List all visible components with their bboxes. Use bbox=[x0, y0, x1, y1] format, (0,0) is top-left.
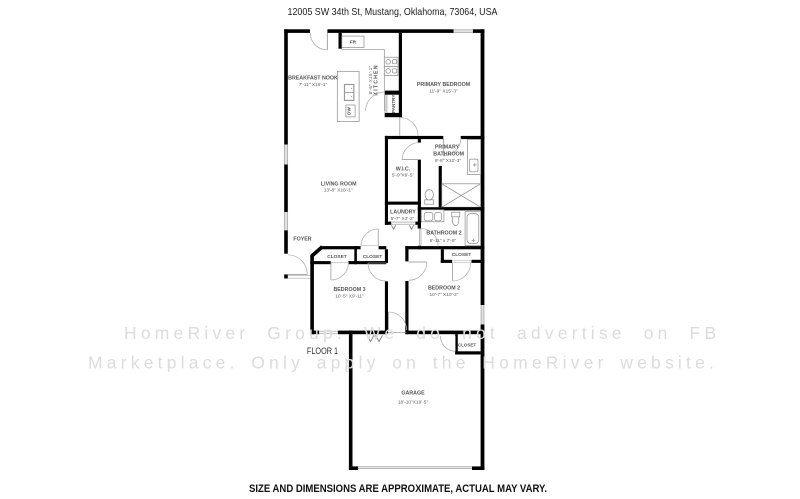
svg-text:7'-11" X15'-1": 7'-11" X15'-1" bbox=[299, 82, 328, 88]
svg-text:8'-6" X15'-1": 8'-6" X15'-1" bbox=[368, 65, 374, 94]
svg-text:PRIMARY BEDROOM: PRIMARY BEDROOM bbox=[417, 82, 471, 88]
svg-text:PANTRY: PANTRY bbox=[391, 95, 396, 113]
svg-text:LIVING ROOM: LIVING ROOM bbox=[321, 182, 357, 188]
svg-text:BATHROOM: BATHROOM bbox=[433, 152, 464, 158]
svg-text:8'-8" X10'-3": 8'-8" X10'-3" bbox=[435, 158, 462, 164]
svg-text:Marketplace. Only apply on the: Marketplace. Only apply on the HomeRiver… bbox=[88, 353, 718, 373]
svg-text:8'-11" x 7'-9": 8'-11" x 7'-9" bbox=[430, 238, 457, 244]
svg-text:12005 SW 34th St, Mustang, Okl: 12005 SW 34th St, Mustang, Oklahoma, 730… bbox=[288, 6, 498, 18]
svg-text:CLOSET: CLOSET bbox=[452, 252, 472, 258]
svg-text:FOYER: FOYER bbox=[293, 237, 311, 243]
svg-text:FR: FR bbox=[350, 40, 357, 46]
svg-text:5'-7" X3'-2": 5'-7" X3'-2" bbox=[391, 216, 415, 222]
svg-text:W.I.C.: W.I.C. bbox=[396, 166, 411, 172]
svg-text:LAUNDRY: LAUNDRY bbox=[390, 210, 416, 216]
svg-text:CLOSET: CLOSET bbox=[327, 254, 347, 260]
svg-text:BEDROOM 3: BEDROOM 3 bbox=[333, 287, 365, 293]
svg-text:5'-9"X9'-5": 5'-9"X9'-5" bbox=[392, 173, 415, 179]
svg-text:HomeRiver Group. We do not adv: HomeRiver Group. We do not advertise on … bbox=[124, 323, 720, 343]
svg-text:BATHROOM 2: BATHROOM 2 bbox=[426, 231, 461, 237]
svg-text:GARAGE: GARAGE bbox=[401, 390, 425, 396]
svg-text:11'-9" X15'-3": 11'-9" X15'-3" bbox=[429, 88, 458, 94]
svg-text:10'-7" X10'-2": 10'-7" X10'-2" bbox=[430, 292, 459, 298]
svg-text:DW: DW bbox=[347, 107, 352, 115]
svg-text:BREAKFAST NOOK: BREAKFAST NOOK bbox=[288, 76, 338, 82]
svg-text:10'-5" X9'-11": 10'-5" X9'-11" bbox=[335, 293, 364, 299]
svg-text:13'-8" X16'-1": 13'-8" X16'-1" bbox=[324, 188, 353, 194]
svg-text:CLOSET: CLOSET bbox=[363, 254, 383, 260]
svg-text:18'-10"X19'-5": 18'-10"X19'-5" bbox=[398, 399, 429, 405]
svg-text:BEDROOM 2: BEDROOM 2 bbox=[428, 285, 460, 291]
svg-text:PRIMARY: PRIMARY bbox=[435, 144, 460, 150]
svg-text:KITCHEN: KITCHEN bbox=[374, 64, 380, 95]
svg-text:CLOSET: CLOSET bbox=[458, 342, 477, 347]
svg-text:SIZE AND DIMENSIONS ARE APPROX: SIZE AND DIMENSIONS ARE APPROXIMATE, ACT… bbox=[249, 483, 547, 495]
